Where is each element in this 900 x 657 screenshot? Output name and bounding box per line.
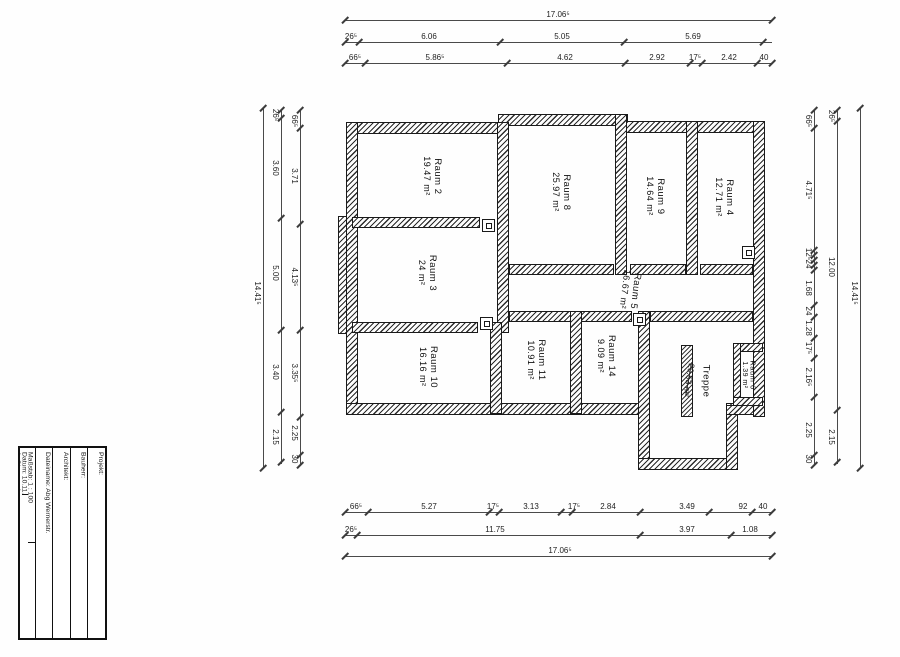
door-symbol-inner — [484, 321, 490, 327]
titleblock-dateiname: Dateiname: Abg Wernerstr. — [36, 448, 54, 638]
wall-segment — [686, 121, 698, 275]
door-symbol — [633, 313, 646, 326]
dimension-label: 17⁵ — [689, 53, 701, 62]
titleblock-bauherr: Bauherr: — [71, 448, 89, 638]
dimension-label: 5.00 — [271, 265, 280, 281]
wall-segment — [352, 322, 478, 333]
dimension-label: 14.41⁵ — [253, 281, 262, 304]
dimension-label: 2.92 — [649, 53, 665, 62]
door-symbol-inner — [486, 223, 492, 229]
dimension-label: 92 — [739, 502, 748, 511]
dimension-label: 26⁵ — [345, 525, 357, 534]
dimension-tick — [833, 458, 840, 465]
dimension-line — [345, 20, 772, 21]
dimension-line — [263, 108, 264, 468]
door-symbol-inner — [746, 250, 752, 256]
door-symbol-inner — [637, 317, 643, 323]
dimension-tick — [768, 552, 775, 559]
room-label-raum-14: Raum 149.09 m² — [595, 335, 617, 377]
wall-segment — [352, 217, 480, 228]
dimension-tick — [768, 508, 775, 515]
dimension-tick — [768, 16, 775, 23]
dimension-line — [300, 110, 301, 466]
door-symbol — [742, 246, 755, 259]
door-symbol — [480, 317, 493, 330]
titleblock-geschoss: 1. Obergeschoss — [20, 448, 22, 638]
wall-segment — [700, 264, 753, 275]
dimension-line — [345, 556, 772, 557]
dimension-label: 3.71 — [290, 168, 299, 184]
room-name: Raum 2 — [432, 156, 443, 196]
room-area: 19.47 m² — [421, 156, 432, 196]
dimension-tick — [277, 458, 284, 465]
dimension-tick — [259, 464, 266, 471]
dimension-label: 1.08 — [742, 525, 758, 534]
room-name: Raum 14 — [606, 335, 617, 377]
room-name: Raum 11 — [536, 339, 547, 380]
dimension-label: 66⁵ — [350, 502, 362, 511]
dimension-tick — [768, 59, 775, 66]
wall-segment — [346, 122, 506, 134]
dimension-label: 5.05 — [554, 32, 570, 41]
room-label-raum-9: Raum 914.64 m² — [644, 176, 666, 216]
dimension-label: 5.27 — [421, 502, 437, 511]
wall-segment — [650, 311, 753, 322]
dimension-label: 6.06 — [421, 32, 437, 41]
titleblock-scale-column: Maßstab: 1 : 100 Datum: 10.11.2017 1. Ob… — [20, 448, 36, 638]
dimension-tick — [856, 464, 863, 471]
wall-segment — [638, 458, 738, 470]
dimension-label: 40 — [760, 53, 769, 62]
dimension-label: 3.13 — [523, 502, 539, 511]
dimension-label: 66⁵ — [349, 53, 361, 62]
room-label-raum-5: Raum 516.67 m² — [617, 269, 644, 311]
dimension-label: 4.13⁵ — [290, 268, 299, 287]
dimension-line — [345, 63, 772, 64]
dimension-label: 11.75 — [485, 525, 504, 534]
title-block: Maßstab: 1 : 100 Datum: 10.11.2017 1. Ob… — [18, 446, 107, 640]
dimension-label: 14.41⁵ — [850, 281, 859, 304]
dimension-label: 2.25 — [290, 425, 299, 441]
titleblock-massstab: Maßstab: 1 : 100 — [28, 448, 34, 543]
dimension-label: 2.42 — [721, 53, 737, 62]
wall-segment — [615, 114, 627, 275]
dimension-label: 26⁵ — [271, 109, 280, 121]
dimension-line — [860, 108, 861, 468]
room-area: 1.39 m² — [740, 360, 749, 389]
room-label-raum-4: Raum 412.71 m² — [713, 177, 735, 217]
wall-segment — [638, 311, 650, 470]
room-name: Raum 9 — [655, 176, 666, 216]
dimension-label: 30 — [290, 455, 299, 464]
wall-segment — [490, 322, 502, 414]
room-area: 10.91 m² — [525, 339, 536, 380]
door-symbol — [482, 219, 495, 232]
dimension-label: 3.40 — [271, 364, 280, 380]
room-name: Treppe — [701, 365, 712, 398]
room-area: 9.09 m² — [595, 335, 606, 377]
dimension-label: 24 — [804, 307, 813, 316]
dimension-label: 3.49 — [679, 502, 695, 511]
room-label-treppe: Treppe — [701, 365, 712, 398]
dimension-label: 12⁵ — [804, 248, 813, 260]
room-label-raum-8: Raum 825.97 m² — [550, 172, 572, 212]
room-label-raum-3: Raum 324 m² — [416, 255, 438, 291]
dimension-label: 4.71⁵ — [804, 181, 813, 200]
wall-segment — [509, 264, 614, 275]
dimension-label: 17.06⁵ — [548, 546, 571, 555]
wall-segment — [570, 311, 582, 414]
dimension-label: 1.28 — [804, 320, 813, 336]
dimension-label: 66⁵ — [804, 115, 813, 127]
dimension-label: 17⁵ — [487, 502, 499, 511]
titleblock-datum: Datum: 10.11.2017 — [22, 448, 28, 495]
wall-segment — [346, 122, 358, 415]
dimension-label: 40 — [759, 502, 768, 511]
room-area: 24 m² — [416, 255, 427, 291]
room-name: Raum 8 — [561, 172, 572, 212]
room-label-raum-6: Raum 61.39 m² — [740, 360, 757, 389]
dimension-label: 26⁵ — [345, 32, 357, 41]
dimension-label: 3.35⁵ — [290, 364, 299, 383]
room-area: 14.64 m² — [644, 176, 655, 216]
dimension-label: 5.69 — [685, 32, 701, 41]
dimension-label: 3.97 — [679, 525, 695, 534]
dimension-line — [345, 535, 772, 536]
room-area: 12.71 m² — [713, 177, 724, 217]
room-label-raum-2: Raum 219.47 m² — [421, 156, 443, 196]
dimension-label: 4.62 — [557, 53, 573, 62]
dimension-line — [814, 110, 815, 466]
dimension-label: 17⁵ — [568, 502, 580, 511]
room-name: Raum 3 — [427, 255, 438, 291]
room-area: 25.97 m² — [550, 172, 561, 212]
dimension-label: 17⁵ — [804, 342, 813, 354]
dimension-line — [345, 42, 772, 43]
dimension-label: 12.00 — [827, 257, 836, 277]
dimension-label: 30 — [804, 455, 813, 464]
wall-segment — [497, 122, 509, 333]
room-name: Raum 4 — [724, 177, 735, 217]
dimension-tick — [768, 531, 775, 538]
titleblock-projekt: Projekt: — [88, 448, 105, 638]
dimension-label: 3.60 — [271, 160, 280, 176]
dimension-label: 2.15 — [827, 429, 836, 445]
room-name: Raum 6 — [748, 360, 757, 389]
dimension-label: 2.25 — [804, 422, 813, 438]
room-area: 16.16 m² — [417, 346, 428, 388]
dimension-label: 5.86⁵ — [426, 53, 445, 62]
room-name: Raum 10 — [428, 346, 439, 388]
dimension-label: 24 — [804, 260, 813, 269]
room-label-raum-10: Raum 1016.16 m² — [417, 346, 439, 388]
wall-segment — [498, 114, 628, 126]
wall-segment — [338, 216, 347, 334]
wall-segment — [733, 397, 763, 406]
dimension-label: 2.84 — [600, 502, 616, 511]
dimension-label: 17.06⁵ — [546, 10, 569, 19]
room-label-raum-11: Raum 1110.91 m² — [525, 339, 547, 380]
titleblock-architekt: Architekt: — [53, 448, 71, 638]
dimension-label: 1.68 — [804, 280, 813, 296]
dimension-label: 66⁵ — [290, 115, 299, 127]
dimension-label: 2.16⁵ — [804, 368, 813, 387]
floorplan-page: Raum 219.47 m²Raum 825.97 m²Raum 914.64 … — [0, 0, 900, 657]
dimension-label: 2.15 — [271, 429, 280, 445]
dimension-label: 26⁵ — [827, 110, 836, 122]
